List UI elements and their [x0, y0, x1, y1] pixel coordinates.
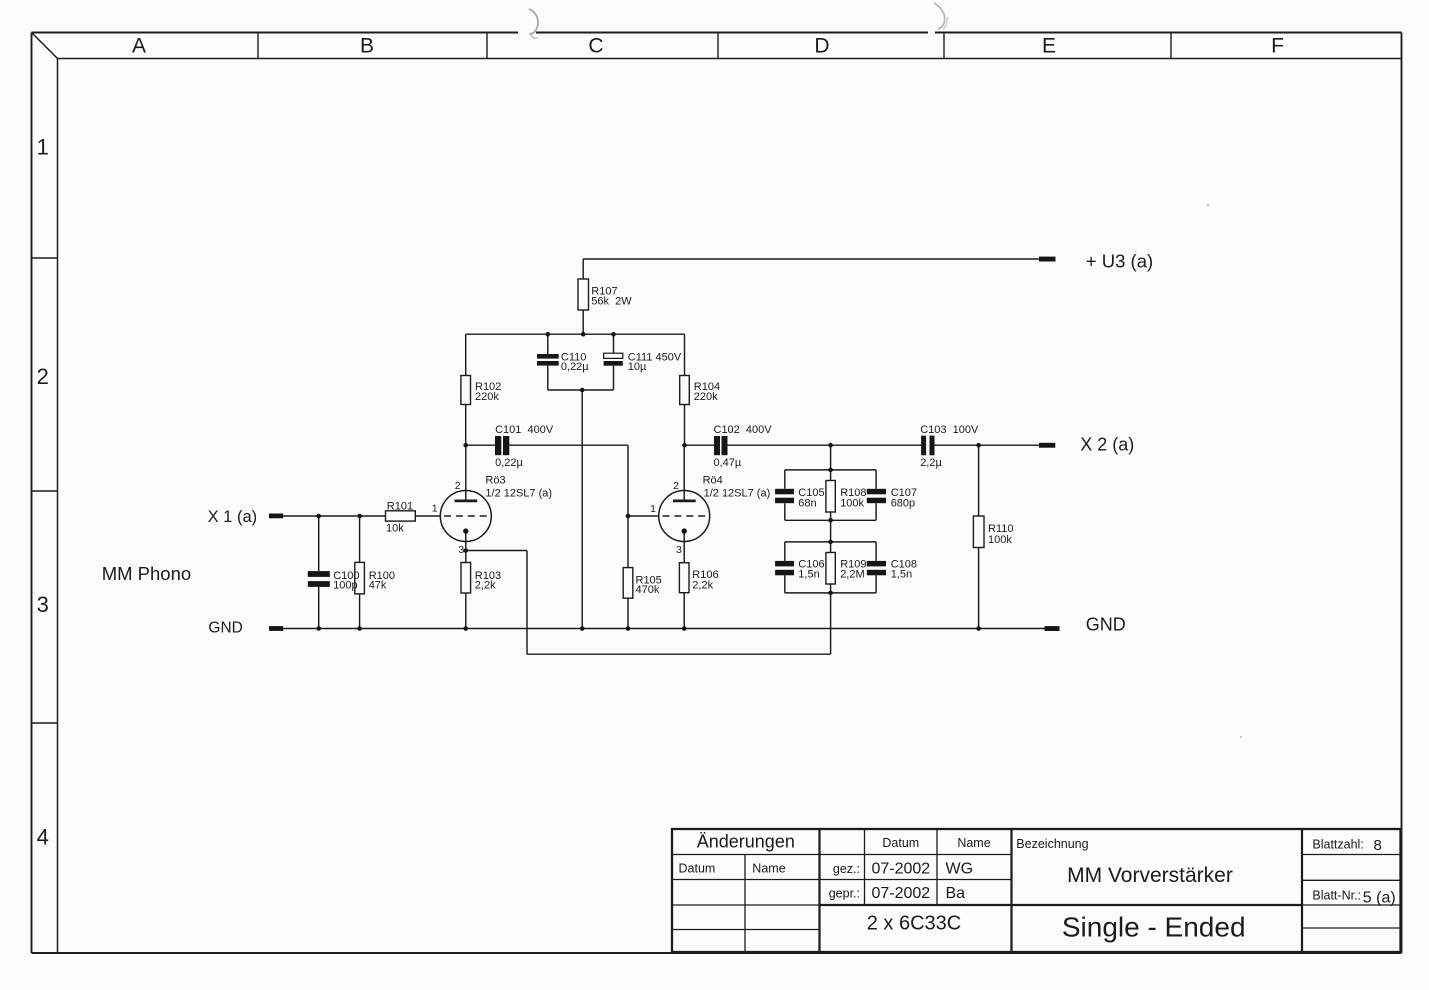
svg-text:1: 1	[37, 134, 49, 159]
svg-text:Bezeichnung: Bezeichnung	[1016, 837, 1088, 851]
svg-text:07-2002: 07-2002	[871, 861, 930, 878]
svg-text:220k: 220k	[475, 391, 499, 403]
svg-text:07-2002: 07-2002	[871, 885, 930, 902]
svg-text:2: 2	[37, 364, 49, 389]
svg-text:2 x 6C33C: 2 x 6C33C	[867, 913, 962, 935]
svg-text:2: 2	[455, 480, 461, 492]
svg-text:8: 8	[1374, 837, 1382, 854]
svg-text:2,2k: 2,2k	[692, 579, 713, 591]
svg-text:Änderungen: Änderungen	[697, 832, 795, 852]
svg-text:2,2M: 2,2M	[840, 569, 864, 581]
svg-text:X 2 (a): X 2 (a)	[1080, 435, 1134, 455]
svg-text:MM Phono: MM Phono	[102, 563, 191, 584]
svg-text:F: F	[1271, 35, 1284, 58]
svg-text:680p: 680p	[891, 497, 915, 509]
svg-text:Blatt-Nr.:: Blatt-Nr.:	[1312, 889, 1361, 903]
svg-text:gez.:: gez.:	[833, 862, 860, 876]
svg-text:3: 3	[37, 592, 49, 617]
svg-text:+ U3 (a): + U3 (a)	[1086, 250, 1153, 271]
svg-text:C101 400V: C101 400V	[495, 424, 554, 436]
svg-text:MM Vorverstärker: MM Vorverstärker	[1067, 864, 1233, 887]
svg-text:WG: WG	[946, 861, 974, 878]
svg-text:2: 2	[673, 480, 679, 492]
svg-text:3: 3	[676, 544, 682, 556]
svg-text:100p: 100p	[333, 580, 357, 592]
svg-text:100k: 100k	[840, 497, 864, 509]
svg-text:2,2µ: 2,2µ	[920, 457, 942, 469]
svg-text:GND: GND	[1086, 614, 1126, 634]
svg-text:C102 400V: C102 400V	[714, 424, 773, 436]
svg-text:68n: 68n	[798, 497, 816, 509]
svg-text:1,5n: 1,5n	[798, 569, 819, 581]
svg-text:220k: 220k	[694, 391, 718, 403]
svg-text:0,22µ: 0,22µ	[495, 457, 523, 469]
svg-text:Rö3: Rö3	[485, 475, 505, 487]
svg-text:100k: 100k	[988, 534, 1012, 546]
svg-text:gepr.:: gepr.:	[829, 887, 860, 901]
svg-text:Name: Name	[752, 862, 785, 876]
svg-text:0,47µ: 0,47µ	[714, 457, 742, 469]
svg-text:R101: R101	[387, 500, 413, 512]
svg-text:4: 4	[37, 825, 49, 850]
svg-text:2,2k: 2,2k	[475, 580, 496, 592]
svg-text:Single - Ended: Single - Ended	[1062, 912, 1246, 943]
svg-text:1,5n: 1,5n	[891, 569, 912, 581]
svg-text:1/2 12SL7 (a): 1/2 12SL7 (a)	[485, 488, 552, 500]
svg-text:56k 2W: 56k 2W	[591, 295, 632, 307]
svg-text:0,22µ: 0,22µ	[561, 361, 589, 373]
svg-text:10k: 10k	[386, 522, 404, 534]
svg-text:GND: GND	[208, 620, 242, 637]
svg-text:Blattzahl:: Blattzahl:	[1312, 838, 1363, 852]
svg-text:D: D	[814, 35, 829, 58]
svg-text:47k: 47k	[369, 580, 387, 592]
svg-text:Ba: Ba	[946, 885, 966, 902]
svg-text:5 (a): 5 (a)	[1363, 890, 1396, 907]
svg-text:A: A	[132, 35, 146, 58]
svg-text:470k: 470k	[636, 584, 660, 596]
svg-text:3: 3	[458, 544, 464, 556]
svg-text:10µ: 10µ	[628, 361, 647, 373]
svg-text:E: E	[1042, 35, 1056, 58]
svg-text:B: B	[360, 35, 374, 58]
svg-text:Datum: Datum	[882, 836, 919, 850]
svg-text:1: 1	[432, 503, 438, 515]
svg-text:X 1 (a): X 1 (a)	[208, 508, 258, 526]
svg-text:1: 1	[650, 503, 656, 515]
svg-text:Rö4: Rö4	[703, 475, 723, 487]
svg-text:C103 100V: C103 100V	[920, 424, 979, 436]
svg-text:C: C	[588, 35, 603, 58]
svg-text:Datum: Datum	[679, 862, 716, 876]
svg-text:Name: Name	[957, 836, 990, 850]
svg-text:1/2 12SL7 (a): 1/2 12SL7 (a)	[704, 488, 771, 500]
